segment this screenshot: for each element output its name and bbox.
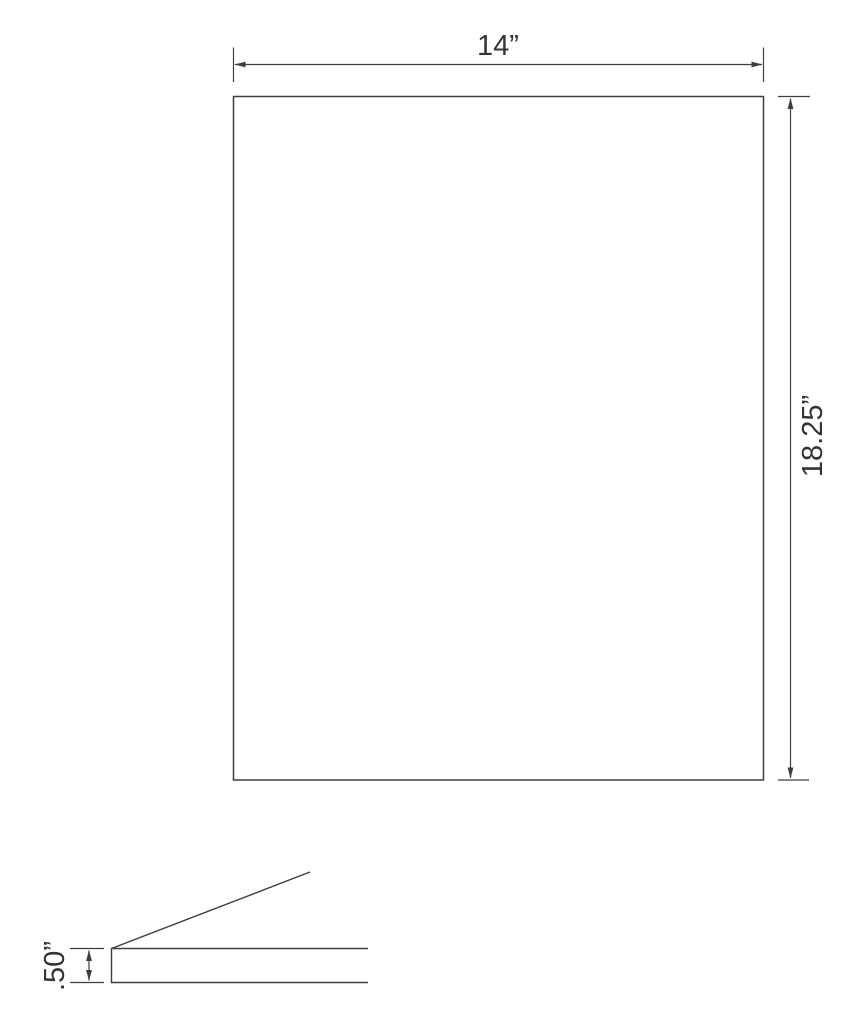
width-dimension: 14” <box>234 30 764 82</box>
drawing-canvas: 14” 18.25” .50” <box>0 0 866 1024</box>
thickness-dimension-label: .50” <box>39 941 71 991</box>
thickness-dimension: .50” <box>39 941 104 991</box>
width-dimension-label: 14” <box>477 30 519 62</box>
height-dimension: 18.25” <box>778 97 829 781</box>
profile-slab-outline <box>112 949 369 983</box>
profile-flap-line <box>112 872 311 949</box>
front-view-outline <box>234 97 764 781</box>
height-dimension-label: 18.25” <box>797 395 829 477</box>
technical-drawing: 14” 18.25” .50” <box>0 0 866 1024</box>
profile-view <box>112 872 369 983</box>
